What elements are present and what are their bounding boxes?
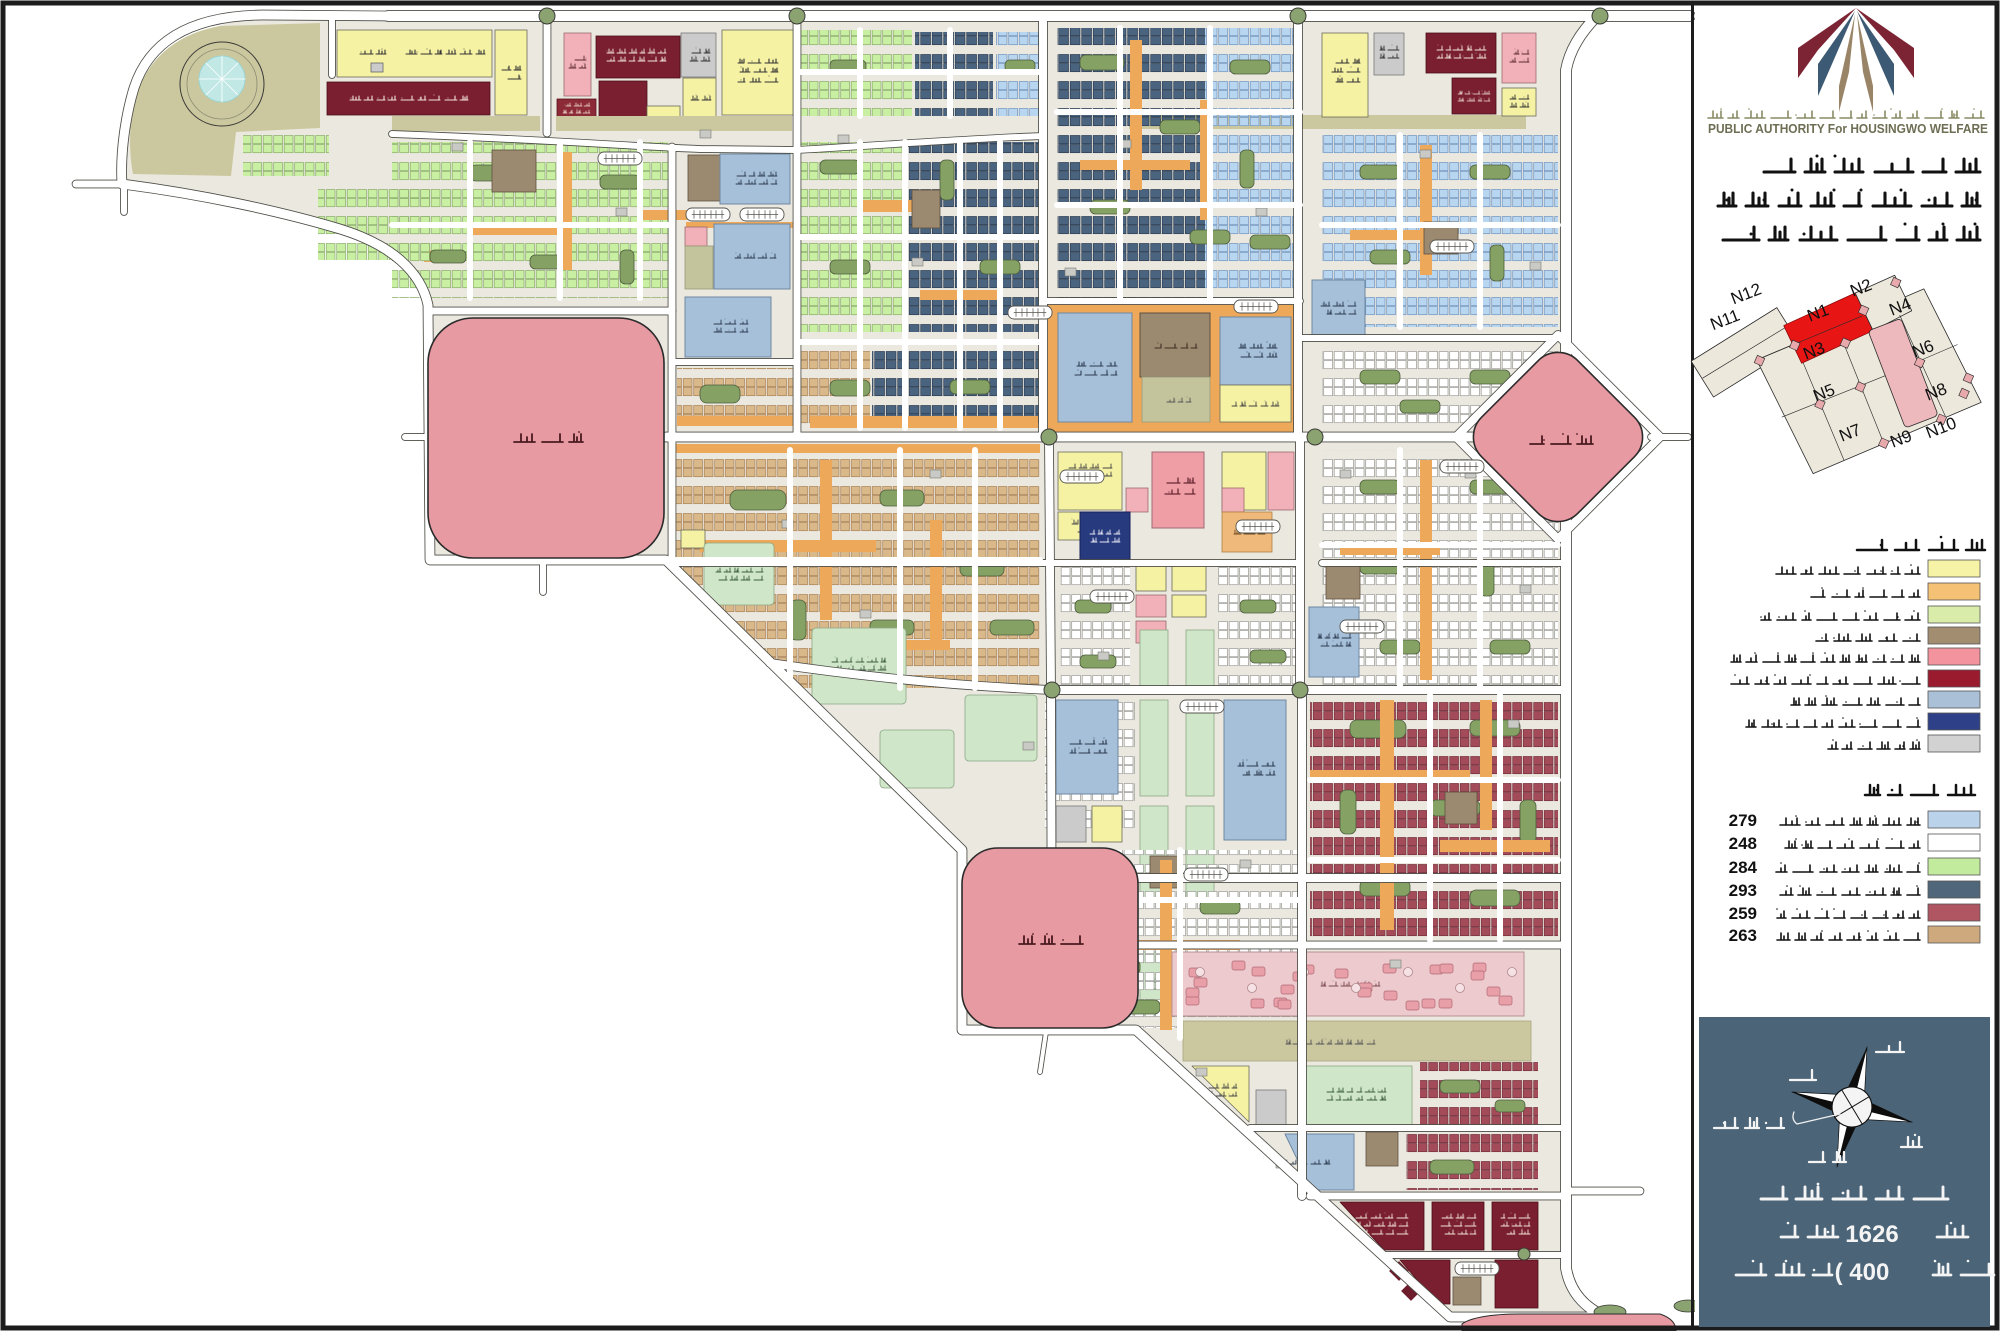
svg-text:263: 263	[1729, 926, 1757, 945]
svg-text:293: 293	[1729, 881, 1757, 900]
svg-text:( 400: ( 400	[1835, 1259, 1890, 1286]
svg-text:279: 279	[1729, 811, 1757, 830]
svg-text:259: 259	[1729, 904, 1757, 923]
svg-text:1626: 1626	[1845, 1221, 1898, 1248]
svg-text:284: 284	[1729, 858, 1758, 877]
svg-text:248: 248	[1729, 834, 1757, 853]
svg-text:PUBLIC AUTHORITY For HOUSINGWO: PUBLIC AUTHORITY For HOUSINGWO WELFARE	[1708, 122, 1988, 136]
